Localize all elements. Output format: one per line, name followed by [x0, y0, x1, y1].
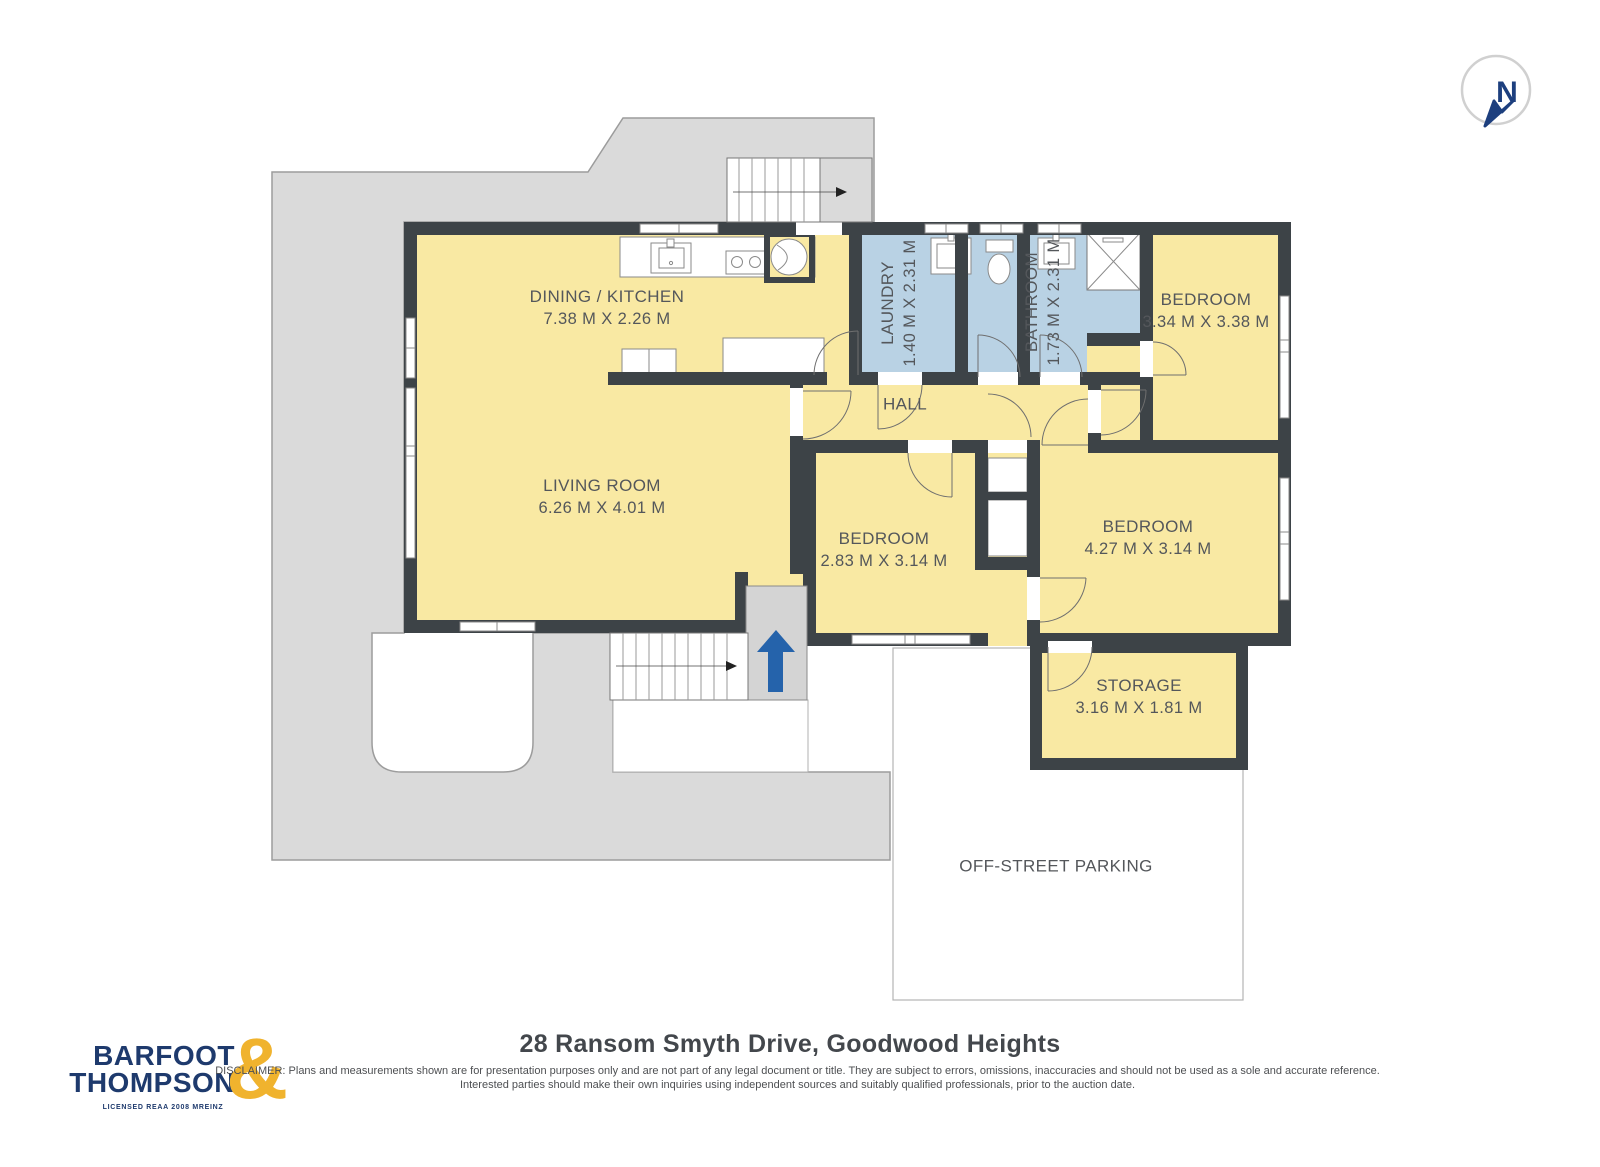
room-label-hall: HALL	[883, 396, 927, 413]
room-label-laundry: LAUNDRY1.40 M X 2.31 M	[877, 239, 921, 366]
property-address-title: 28 Ransom Smyth Drive, Goodwood Heights	[300, 1030, 1280, 1059]
floor-plan-page: N DINING / KITCHEN7.38 M X 2.26 M LIVING…	[0, 0, 1600, 1167]
disclaimer-text: DISCLAIMER: Plans and measurements shown…	[205, 1064, 1390, 1092]
logo-tagline: LICENSED REAA 2008 MREINZ	[88, 1104, 238, 1111]
room-label-storage: STORAGE3.16 M X 1.81 M	[1075, 675, 1202, 719]
room-label-bedroom-2: BEDROOM2.83 M X 3.14 M	[820, 528, 947, 572]
path-below-stairs	[613, 700, 808, 772]
upper-stairs	[727, 158, 872, 222]
room-label-bedroom-3: BEDROOM4.27 M X 3.14 M	[1084, 516, 1211, 560]
hall-closets	[988, 458, 1027, 556]
north-compass: N	[1462, 56, 1530, 126]
room-label-dining-kitchen: DINING / KITCHEN7.38 M X 2.26 M	[530, 286, 685, 330]
room-label-living-room: LIVING ROOM6.26 M X 4.01 M	[538, 475, 665, 519]
room-label-bedroom-1: BEDROOM3.34 M X 3.38 M	[1142, 289, 1269, 333]
north-label: N	[1496, 76, 1518, 109]
room-label-parking: OFF-STREET PARKING	[959, 858, 1153, 875]
floor-plan-canvas: N	[0, 0, 1600, 1167]
room-label-bathroom: BATHROOM1.73 M X 2.31 M	[1021, 238, 1065, 365]
lower-stairs	[610, 633, 748, 700]
